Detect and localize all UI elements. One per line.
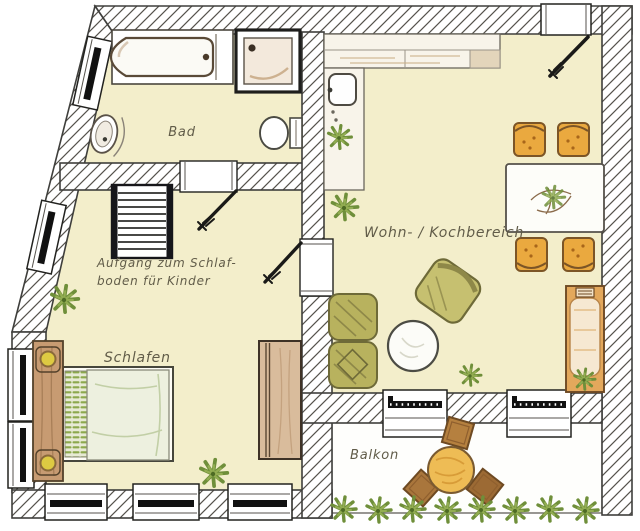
shower	[236, 30, 300, 92]
window-left-2	[8, 422, 34, 488]
window-bottom-3	[228, 484, 292, 520]
label-wohn: Wohn- / Kochbereich	[364, 225, 524, 241]
window-bottom-2	[133, 484, 199, 520]
daybed	[566, 286, 604, 392]
dining-chair	[558, 123, 589, 156]
kitchen-counter-side	[324, 68, 364, 190]
bathtub	[111, 30, 233, 84]
bed-lamp	[41, 352, 56, 367]
dining-chair	[563, 238, 594, 271]
dining-chair	[516, 238, 547, 271]
label-stairs-note-1: Aufgang zum Schlaf-	[96, 256, 237, 270]
bed-pillow	[65, 371, 87, 457]
wall-bad-wohn	[302, 32, 324, 240]
stairs	[112, 185, 172, 258]
window-bottom-1	[45, 484, 107, 520]
balcony-stool	[442, 417, 474, 449]
wall-right	[602, 6, 632, 515]
window-left-1	[8, 349, 34, 421]
label-schlafen: Schlafen	[104, 350, 171, 366]
dining-chair	[514, 123, 545, 156]
floor-plan-svg: Bad Wohn- / Kochbereich Schlafen Balkon …	[0, 0, 640, 531]
label-bad: Bad	[168, 125, 196, 140]
label-stairs-note-2: boden für Kinder	[97, 274, 211, 288]
window-balcony-2	[507, 390, 571, 437]
toilet	[260, 117, 302, 149]
balcony-table	[428, 447, 474, 493]
bed-lamp	[41, 456, 56, 471]
wardrobe	[259, 341, 301, 459]
window-balcony-1	[383, 390, 447, 437]
kitchen-counter-top	[324, 34, 500, 68]
label-balkon: Balkon	[350, 448, 399, 463]
